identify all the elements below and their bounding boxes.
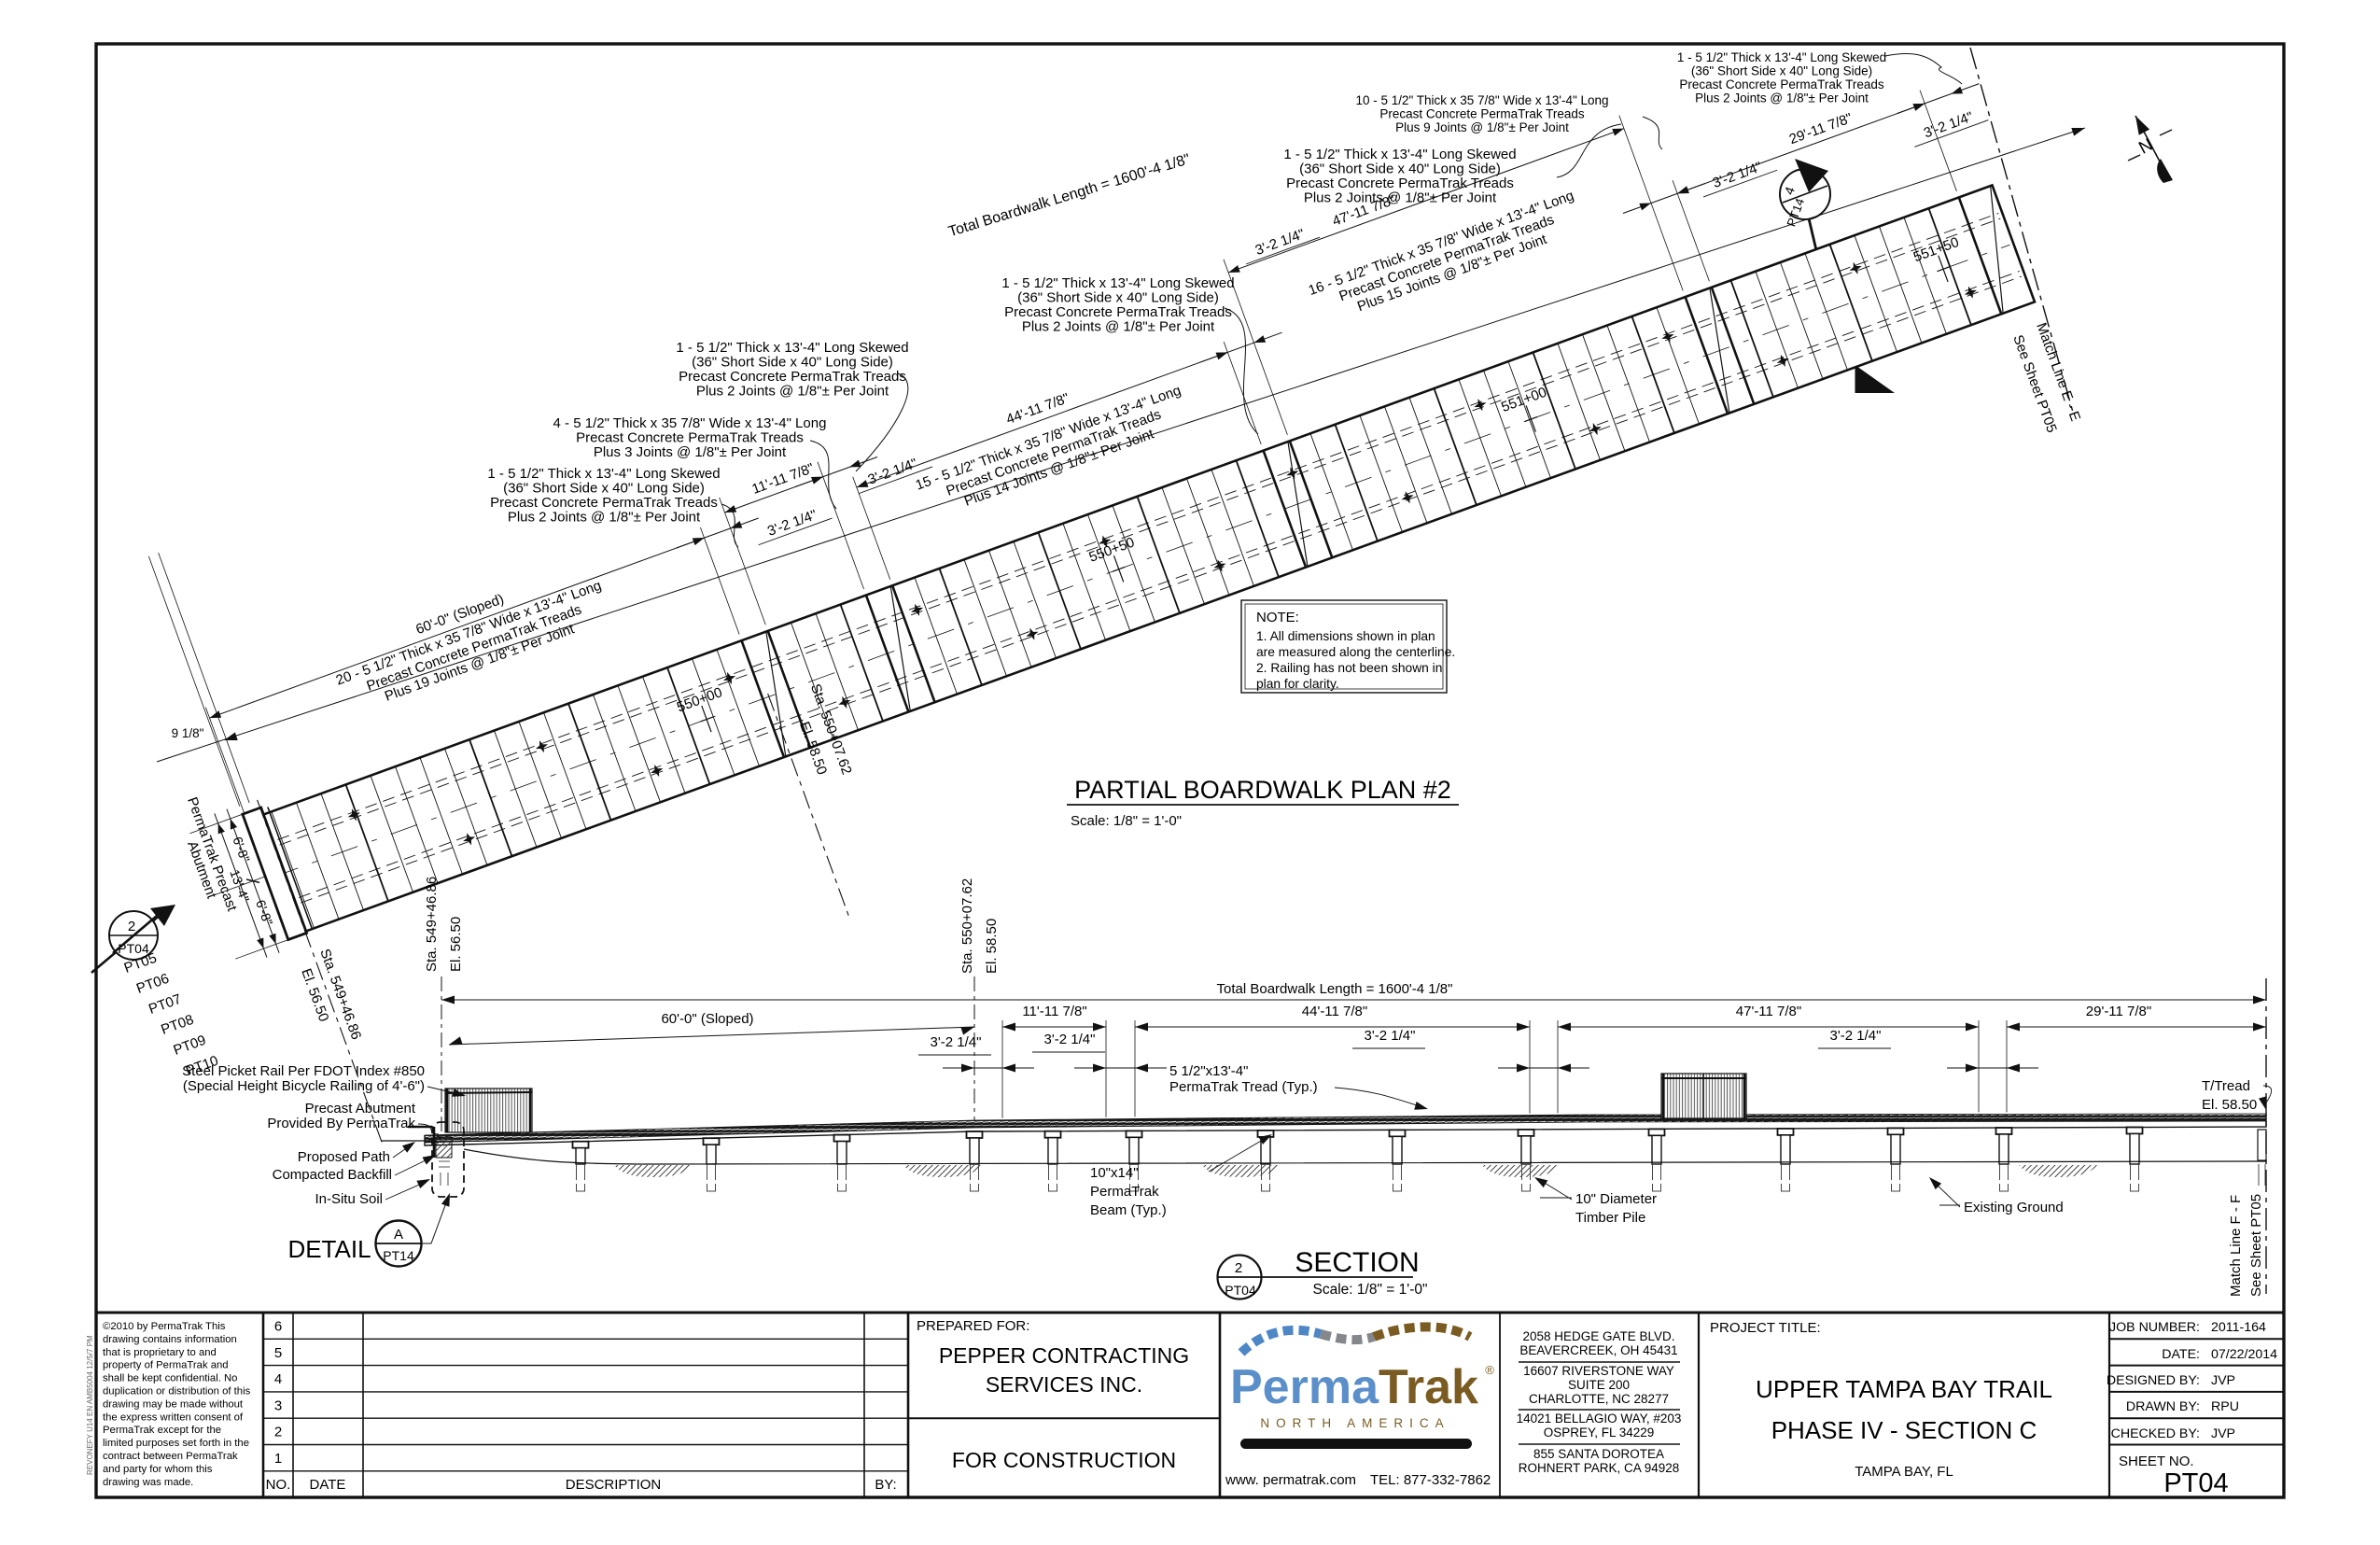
svg-text:In-Situ Soil: In-Situ Soil (315, 1191, 383, 1207)
svg-text:CHECKED BY:: CHECKED BY: (2111, 1426, 2200, 1441)
svg-text:are measured along the centerl: are measured along the centerline. (1256, 645, 1455, 659)
svg-text:JVP: JVP (2211, 1373, 2235, 1388)
svg-text:4 - 5 1/2" Thick x 35 7/8" Wid: 4 - 5 1/2" Thick x 35 7/8" Wide x 13'-4"… (553, 415, 827, 431)
svg-text:Plus 2 Joints @ 1/8"± Per Join: Plus 2 Joints @ 1/8"± Per Joint (696, 384, 889, 400)
svg-text:(36" Short Side x 40" Long Sid: (36" Short Side x 40" Long Side) (1691, 64, 1872, 78)
svg-text:PREPARED FOR:: PREPARED FOR: (917, 1318, 1029, 1334)
svg-text:See Sheet PT05: See Sheet PT05 (2248, 1194, 2264, 1297)
svg-text:2: 2 (1235, 1260, 1242, 1276)
svg-text:TEL: 877-332-7862: TEL: 877-332-7862 (1370, 1472, 1491, 1488)
svg-text:DATE:: DATE: (2162, 1347, 2200, 1362)
svg-text:47'-11 7/8": 47'-11 7/8" (1736, 1004, 1801, 1019)
svg-text:REVONEFY U14 EN AMB5004 12/5/7: REVONEFY U14 EN AMB5004 12/5/7 PM (86, 1335, 94, 1475)
svg-text:El. 58.50: El. 58.50 (2202, 1097, 2257, 1113)
svg-text:DESIGNED BY:: DESIGNED BY: (2107, 1373, 2200, 1388)
svg-text:Proposed Path: Proposed Path (298, 1149, 390, 1165)
svg-text:duplication or distribution of: duplication or distribution of this (103, 1386, 251, 1398)
svg-text:limited purposes set forth in: limited purposes set forth in the (103, 1438, 249, 1449)
svg-text:855 SANTA DOROTEA: 855 SANTA DOROTEA (1533, 1447, 1664, 1461)
svg-text:shall be kept confidential. N: shall be kept confidential. No (103, 1373, 237, 1384)
svg-text:the express written consent of: the express written consent of (103, 1412, 244, 1423)
svg-text:3'-2 1/4": 3'-2 1/4" (1044, 1032, 1096, 1047)
svg-text:2011-164: 2011-164 (2211, 1320, 2266, 1335)
svg-text:ROHNERT PARK, CA 94928: ROHNERT PARK, CA 94928 (1519, 1461, 1680, 1475)
svg-text:PEPPER CONTRACTING: PEPPER CONTRACTING (939, 1343, 1189, 1368)
svg-text:Steel Picket Rail Per FDOT Ind: Steel Picket Rail Per FDOT Index #850 (182, 1063, 425, 1079)
svg-text:PHASE IV - SECTION C: PHASE IV - SECTION C (1771, 1416, 2037, 1444)
svg-text:Beam (Typ.): Beam (Typ.) (1090, 1202, 1167, 1218)
svg-text:RPU: RPU (2211, 1399, 2239, 1414)
svg-text:3: 3 (274, 1398, 282, 1413)
svg-text:®: ® (1485, 1363, 1494, 1377)
svg-text:5: 5 (274, 1345, 282, 1361)
svg-text:www. permatrak.com: www. permatrak.com (1225, 1472, 1356, 1488)
svg-text:Precast Concrete PermaTrak Tre: Precast Concrete PermaTrak Treads (1679, 77, 1884, 91)
svg-text:Plus 2 Joints @ 1/8"± Per Join: Plus 2 Joints @ 1/8"± Per Joint (1022, 319, 1215, 335)
svg-text:JVP: JVP (2211, 1426, 2235, 1441)
svg-text:drawing was made.: drawing was made. (103, 1477, 193, 1488)
svg-text:NOTE:: NOTE: (1256, 610, 1299, 625)
svg-text:PermaTrak: PermaTrak (1090, 1184, 1159, 1200)
svg-text:DATE: DATE (310, 1477, 346, 1493)
svg-text:FOR CONSTRUCTION: FOR CONSTRUCTION (952, 1448, 1176, 1472)
svg-text:UPPER TAMPA BAY TRAIL: UPPER TAMPA BAY TRAIL (1756, 1375, 2052, 1403)
svg-text:PT04: PT04 (2163, 1468, 2228, 1498)
svg-text:T/Tread: T/Tread (2202, 1078, 2250, 1094)
svg-text:PermaTrak: PermaTrak (1230, 1360, 1478, 1414)
svg-text:SUITE 200: SUITE 200 (1568, 1378, 1630, 1392)
svg-text:DRAWN BY:: DRAWN BY: (2126, 1399, 2200, 1414)
svg-text:10 - 5 1/2" Thick x 35 7/8" Wi: 10 - 5 1/2" Thick x 35 7/8" Wide x 13'-4… (1355, 93, 1608, 107)
svg-text:4: 4 (274, 1371, 282, 1387)
svg-text:OSPREY, FL 34229: OSPREY, FL 34229 (1544, 1426, 1655, 1440)
svg-text:1 - 5 1/2" Thick x 13'-4" Long: 1 - 5 1/2" Thick x 13'-4" Long Skewed (487, 466, 720, 482)
svg-text:Existing Ground: Existing Ground (1964, 1200, 2064, 1215)
svg-text:BEAVERCREEK, OH 45431: BEAVERCREEK, OH 45431 (1519, 1343, 1677, 1357)
svg-text:Precast Concrete PermaTrak Tre: Precast Concrete PermaTrak Treads (1379, 107, 1585, 121)
svg-text:1: 1 (274, 1451, 282, 1467)
svg-text:drawing contains information: drawing contains information (103, 1334, 237, 1345)
svg-text:Plus 2 Joints @ 1/8"± Per Join: Plus 2 Joints @ 1/8"± Per Joint (1304, 190, 1497, 206)
svg-text:and party for whom this: and party for whom this (103, 1464, 213, 1475)
svg-text:PT14: PT14 (383, 1248, 414, 1263)
svg-text:07/22/2014: 07/22/2014 (2211, 1347, 2277, 1362)
svg-text:Timber Pile: Timber Pile (1575, 1210, 1645, 1226)
svg-text:NORTH AMERICA: NORTH AMERICA (1260, 1416, 1449, 1430)
svg-text:60'-0" (Sloped): 60'-0" (Sloped) (661, 1011, 753, 1027)
svg-text:10"x14": 10"x14" (1090, 1165, 1139, 1181)
svg-text:16607 RIVERSTONE WAY: 16607 RIVERSTONE WAY (1523, 1364, 1674, 1378)
svg-text:Compacted Backfill: Compacted Backfill (273, 1167, 392, 1183)
svg-text:2058 HEDGE GATE BLVD.: 2058 HEDGE GATE BLVD. (1522, 1329, 1674, 1343)
svg-text:1 - 5 1/2" Thick x 13'-4" Long: 1 - 5 1/2" Thick x 13'-4" Long Skewed (1001, 275, 1234, 291)
svg-text:JOB NUMBER:: JOB NUMBER: (2109, 1320, 2200, 1335)
svg-text:29'-11 7/8": 29'-11 7/8" (2086, 1004, 2151, 1019)
svg-text:Scale: 1/8" = 1'-0": Scale: 1/8" = 1'-0" (1313, 1282, 1428, 1298)
svg-text:Sta. 549+46.86: Sta. 549+46.86 (424, 877, 440, 972)
svg-text:PT04: PT04 (1225, 1283, 1256, 1298)
svg-text:CHARLOTTE, NC 28277: CHARLOTTE, NC 28277 (1529, 1392, 1669, 1406)
svg-text:Precast Concrete PermaTrak Tre: Precast Concrete PermaTrak Treads (1286, 176, 1514, 191)
svg-text:2: 2 (128, 919, 135, 934)
svg-text:PARTIAL BOARDWALK PLAN #2: PARTIAL BOARDWALK PLAN #2 (1074, 776, 1451, 804)
svg-text:3'-2 1/4": 3'-2 1/4" (1365, 1028, 1416, 1044)
svg-text:(36" Short Side x 40" Long Sid: (36" Short Side x 40" Long Side) (1017, 290, 1219, 306)
svg-text:Precast Concrete PermaTrak Tre: Precast Concrete PermaTrak Treads (1004, 304, 1232, 320)
svg-text:PermaTrak except for the: PermaTrak except for the (103, 1425, 221, 1436)
svg-text:El. 56.50: El. 56.50 (448, 917, 464, 972)
svg-text:Plus 9 Joints @ 1/8"± Per Join: Plus 9 Joints @ 1/8"± Per Joint (1395, 120, 1569, 134)
svg-text:TAMPA BAY, FL: TAMPA BAY, FL (1855, 1464, 1953, 1480)
svg-text:2. Railing has not been shown: 2. Railing has not been shown in (1256, 661, 1442, 675)
svg-text:SHEET NO.: SHEET NO. (2119, 1454, 2194, 1469)
svg-text:1. All dimensions shown in pla: 1. All dimensions shown in plan (1256, 629, 1435, 643)
svg-text:drawing may be made without: drawing may be made without (103, 1398, 244, 1410)
svg-text:1 - 5 1/2" Thick x 13'-4" Long: 1 - 5 1/2" Thick x 13'-4" Long Skewed (676, 340, 908, 356)
svg-text:PermaTrak Tread (Typ.): PermaTrak Tread (Typ.) (1169, 1079, 1318, 1095)
svg-text:contract between PermaTrak: contract between PermaTrak (103, 1451, 238, 1462)
svg-text:SERVICES INC.: SERVICES INC. (986, 1372, 1142, 1397)
svg-text:PROJECT TITLE:: PROJECT TITLE: (1710, 1320, 1821, 1336)
svg-text:property of PermaTrak and: property of PermaTrak and (103, 1360, 229, 1371)
svg-text:3'-2 1/4": 3'-2 1/4" (1830, 1028, 1882, 1044)
svg-text:Precast Concrete PermaTrak Tre: Precast Concrete PermaTrak Treads (679, 369, 906, 385)
svg-text:plan for clarity.: plan for clarity. (1256, 677, 1339, 691)
svg-text:2: 2 (274, 1425, 282, 1440)
svg-text:SECTION: SECTION (1295, 1247, 1419, 1278)
svg-text:11'-11 7/8": 11'-11 7/8" (1022, 1004, 1086, 1019)
svg-text:DESCRIPTION: DESCRIPTION (566, 1477, 662, 1493)
svg-text:Total Boardwalk Length = 1600': Total Boardwalk Length = 1600'-4 1/8" (1217, 981, 1453, 997)
svg-text:Match Line F - F: Match Line F - F (2228, 1195, 2244, 1297)
svg-text:(36" Short Side x 40" Long Sid: (36" Short Side x 40" Long Side) (503, 481, 705, 497)
svg-text:6: 6 (274, 1319, 282, 1335)
svg-text:NO.: NO. (266, 1477, 291, 1493)
svg-text:(Special Height Bicycle Railin: (Special Height Bicycle Railing of 4'-6"… (183, 1078, 425, 1094)
svg-text:Sta. 550+07.62: Sta. 550+07.62 (959, 878, 975, 974)
svg-text:3'-2 1/4": 3'-2 1/4" (931, 1034, 982, 1050)
svg-text:Plus 2 Joints @ 1/8"± Per Join: Plus 2 Joints @ 1/8"± Per Joint (1695, 91, 1869, 105)
svg-text:Provided By PermaTrak: Provided By PermaTrak (267, 1116, 415, 1131)
svg-text:A: A (394, 1227, 403, 1243)
svg-text:Scale: 1/8" = 1'-0": Scale: 1/8" = 1'-0" (1071, 813, 1182, 829)
svg-text:Plus 3 Joints @ 1/8"± Per Join: Plus 3 Joints @ 1/8"± Per Joint (594, 444, 787, 460)
svg-text:10" Diameter: 10" Diameter (1575, 1191, 1657, 1207)
svg-text:1 - 5 1/2" Thick x 13'-4" Long: 1 - 5 1/2" Thick x 13'-4" Long Skewed (1677, 50, 1886, 64)
svg-text:©2010 by PermaTrak This: ©2010 by PermaTrak This (103, 1321, 226, 1332)
svg-text:14021 BELLAGIO WAY, #203: 14021 BELLAGIO WAY, #203 (1517, 1412, 1682, 1426)
svg-text:1 - 5 1/2" Thick x 13'-4" Long: 1 - 5 1/2" Thick x 13'-4" Long Skewed (1283, 147, 1516, 162)
svg-text:9 1/8": 9 1/8" (172, 726, 204, 740)
svg-text:El. 58.50: El. 58.50 (984, 919, 1000, 974)
svg-text:(36" Short Side x 40" Long Sid: (36" Short Side x 40" Long Side) (692, 355, 893, 371)
svg-text:5 1/2"x13'-4": 5 1/2"x13'-4" (1169, 1063, 1248, 1079)
svg-text:Precast Concrete PermaTrak Tre: Precast Concrete PermaTrak Treads (490, 495, 718, 511)
svg-text:DETAIL: DETAIL (287, 1235, 371, 1263)
svg-text:44'-11 7/8": 44'-11 7/8" (1302, 1004, 1367, 1019)
svg-text:Precast Concrete PermaTrak Tre: Precast Concrete PermaTrak Treads (576, 430, 804, 446)
svg-text:Precast Abutment: Precast Abutment (305, 1101, 416, 1117)
svg-text:(36" Short Side x 40" Long Sid: (36" Short Side x 40" Long Side) (1299, 162, 1501, 177)
svg-text:BY:: BY: (875, 1477, 896, 1493)
svg-text:Plus 2 Joints @ 1/8"± Per Join: Plus 2 Joints @ 1/8"± Per Joint (508, 510, 701, 526)
svg-text:that is proprietary to and: that is proprietary to and (103, 1347, 217, 1358)
